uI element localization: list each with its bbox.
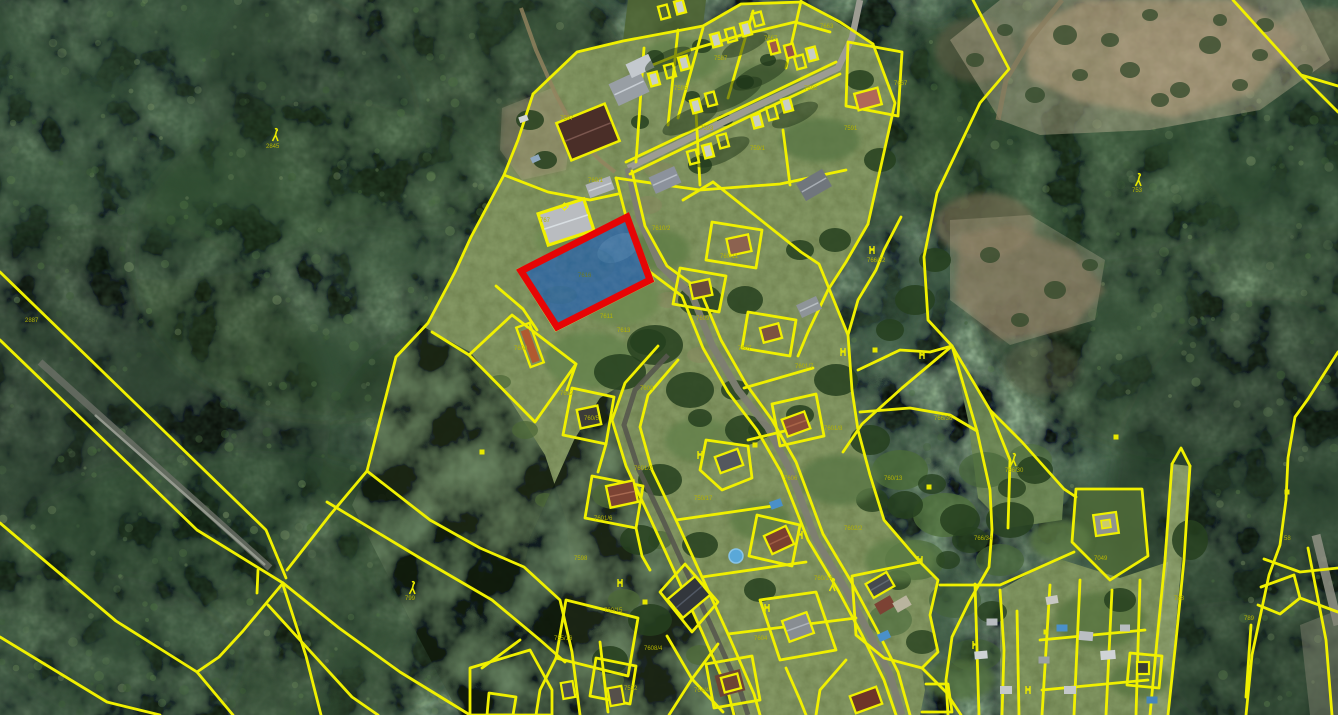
svg-text:7611: 7611 [600, 314, 614, 320]
svg-text:7602/2: 7602/2 [844, 526, 863, 532]
svg-text:7049: 7049 [1094, 556, 1108, 562]
svg-text:789: 789 [1244, 616, 1255, 622]
svg-text:7608: 7608 [514, 346, 528, 352]
svg-text:766/32: 766/32 [867, 258, 886, 264]
svg-text:767: 767 [540, 218, 551, 224]
svg-text:7591: 7591 [844, 126, 858, 132]
svg-text:7587: 7587 [714, 56, 728, 62]
svg-text:760/14: 760/14 [814, 576, 833, 582]
svg-text:7601/6: 7601/6 [594, 516, 613, 522]
svg-text:788: 788 [1174, 596, 1185, 602]
svg-text:7663: 7663 [820, 24, 834, 30]
svg-text:760/15: 760/15 [604, 608, 623, 614]
svg-text:755/16: 755/16 [554, 636, 573, 642]
svg-text:7667: 7667 [894, 81, 908, 87]
svg-text:764/4: 764/4 [694, 688, 710, 694]
svg-text:760/11: 760/11 [720, 254, 739, 260]
svg-text:7609: 7609 [696, 316, 710, 322]
svg-text:7601/7: 7601/7 [795, 364, 814, 370]
svg-text:7604: 7604 [754, 636, 768, 642]
svg-text:766/34: 766/34 [974, 536, 993, 542]
svg-text:7597: 7597 [560, 116, 574, 122]
svg-text:2845: 2845 [266, 144, 280, 150]
svg-text:799: 799 [405, 596, 416, 602]
svg-text:760/13: 760/13 [884, 476, 903, 482]
svg-text:7613: 7613 [617, 328, 631, 334]
svg-text:7608/4: 7608/4 [644, 646, 663, 652]
svg-text:7610/2: 7610/2 [652, 226, 671, 232]
svg-text:7616: 7616 [578, 273, 592, 279]
svg-text:7600: 7600 [640, 386, 654, 392]
svg-text:7592: 7592 [804, 86, 818, 92]
svg-text:58: 58 [1284, 536, 1291, 542]
svg-text:7592: 7592 [624, 686, 638, 692]
svg-text:753: 753 [1132, 188, 1143, 194]
svg-text:7667: 7667 [764, 36, 778, 42]
svg-text:7595: 7595 [674, 86, 688, 92]
svg-text:7598: 7598 [574, 556, 588, 562]
svg-text:759/1: 759/1 [750, 146, 766, 152]
svg-text:750/17: 750/17 [694, 496, 713, 502]
svg-text:7601/2: 7601/2 [634, 466, 653, 472]
svg-text:7606: 7606 [784, 476, 798, 482]
svg-text:766/30: 766/30 [1005, 468, 1024, 474]
svg-text:766/36: 766/36 [934, 416, 953, 422]
svg-text:7601/8: 7601/8 [824, 426, 843, 432]
svg-text:760/5: 760/5 [584, 416, 600, 422]
svg-text:760/1: 760/1 [588, 178, 604, 184]
svg-text:2887: 2887 [25, 318, 39, 324]
svg-text:7607: 7607 [738, 346, 752, 352]
svg-text:7593: 7593 [700, 126, 714, 132]
svg-text:7612: 7612 [560, 391, 574, 397]
